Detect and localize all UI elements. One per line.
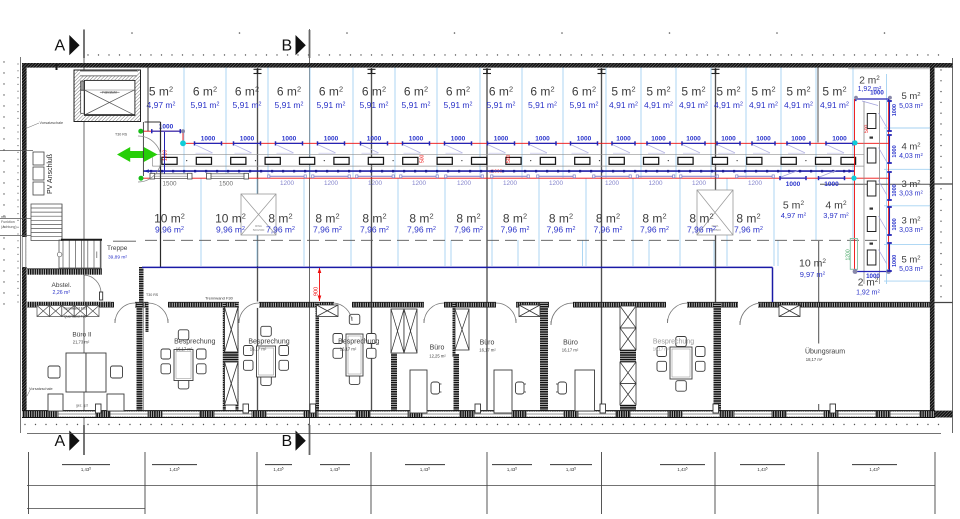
svg-text:4,91 m2: 4,91 m2 [784, 100, 813, 110]
svg-text:Trennwand F30: Trennwand F30 [63, 307, 87, 311]
svg-text:1200: 1200 [549, 180, 564, 187]
svg-text:21,73 m²: 21,73 m² [73, 340, 90, 345]
svg-text:1200: 1200 [748, 180, 763, 187]
svg-text:T30 RS: T30 RS [146, 293, 159, 297]
svg-text:9,96 m2: 9,96 m2 [155, 225, 184, 235]
svg-text:1200: 1200 [324, 180, 339, 187]
svg-text:500: 500 [506, 154, 512, 163]
svg-text:T30 RS: T30 RS [115, 133, 128, 137]
svg-text:1010: 1010 [163, 150, 169, 161]
svg-text:Büro: Büro [563, 340, 578, 347]
svg-text:Abstel.: Abstel. [52, 282, 72, 289]
svg-text:16,17 m²: 16,17 m² [562, 348, 579, 353]
svg-text:4,03 m2: 4,03 m2 [899, 152, 923, 160]
svg-text:1000: 1000 [535, 136, 550, 143]
svg-text:1000: 1000 [494, 136, 509, 143]
svg-text:1200: 1200 [692, 180, 707, 187]
svg-text:7,96 m2: 7,96 m2 [454, 225, 483, 235]
svg-text:1200: 1200 [648, 180, 663, 187]
svg-text:1000: 1000 [651, 136, 666, 143]
svg-text:4,97 m2: 4,97 m2 [147, 100, 176, 110]
svg-text:4,91 m2: 4,91 m2 [820, 100, 849, 110]
svg-text:Fahrstuhl: Fahrstuhl [102, 91, 116, 95]
svg-text:1000: 1000 [892, 218, 898, 230]
svg-text:500x500: 500x500 [253, 228, 265, 232]
svg-text:1000: 1000 [577, 136, 592, 143]
svg-text:Besprechung: Besprechung [174, 339, 215, 346]
svg-text:1500: 1500 [162, 180, 177, 187]
svg-text:500: 500 [420, 154, 426, 163]
svg-text:A: A [55, 38, 66, 55]
svg-text:Besprechung: Besprechung [653, 339, 694, 346]
svg-text:1000: 1000 [721, 136, 736, 143]
svg-text:4,91 m2: 4,91 m2 [714, 100, 743, 110]
svg-text:A: A [55, 433, 66, 450]
svg-text:10 m2: 10 m2 [154, 212, 185, 226]
svg-text:4,91 m2: 4,91 m2 [644, 100, 673, 110]
svg-text:Büro: Büro [430, 345, 445, 352]
svg-text:1000: 1000 [786, 181, 801, 188]
svg-text:1200: 1200 [605, 180, 620, 187]
svg-text:7,96 m2: 7,96 m2 [501, 225, 530, 235]
svg-text:PV Anschluß: PV Anschluß [47, 154, 54, 194]
svg-text:7,96 m2: 7,96 m2 [266, 225, 295, 235]
svg-text:10 m2: 10 m2 [799, 258, 826, 270]
svg-text:3,03 m2: 3,03 m2 [899, 189, 923, 197]
svg-text:1000: 1000 [756, 136, 771, 143]
svg-text:16,17 m²: 16,17 m² [340, 347, 357, 352]
svg-text:1200: 1200 [846, 249, 852, 260]
svg-text:1200: 1200 [280, 180, 295, 187]
svg-text:Büro II: Büro II [72, 332, 91, 339]
svg-text:1000: 1000 [616, 136, 631, 143]
svg-text:5,91 m2: 5,91 m2 [570, 100, 599, 110]
svg-text:1200: 1200 [503, 180, 518, 187]
svg-text:Übungsraum: Übungsraum [805, 348, 845, 356]
svg-text:16,17 m²: 16,17 m² [653, 347, 670, 352]
svg-text:4,91 m2: 4,91 m2 [679, 100, 708, 110]
svg-text:7,96 m2: 7,96 m2 [734, 225, 763, 235]
svg-text:1000: 1000 [791, 136, 806, 143]
svg-text:Treppe: Treppe [107, 245, 128, 252]
svg-text:5,91 m2: 5,91 m2 [275, 100, 304, 110]
svg-text:5,91 m2: 5,91 m2 [317, 100, 346, 110]
svg-text:Büro: Büro [480, 340, 495, 347]
svg-text:B: B [282, 433, 293, 450]
svg-text:5,91 m2: 5,91 m2 [233, 100, 262, 110]
svg-text:Trennwand F30: Trennwand F30 [205, 296, 234, 301]
svg-text:5,91 m2: 5,91 m2 [191, 100, 220, 110]
svg-text:1000: 1000 [324, 136, 339, 143]
svg-text:900: 900 [314, 287, 320, 296]
svg-text:1000: 1000 [892, 184, 898, 196]
svg-text:4,97 m2: 4,97 m2 [781, 211, 807, 220]
svg-text:1000: 1000 [892, 145, 898, 157]
svg-text:1000: 1000 [686, 136, 701, 143]
svg-text:gez. gzt: gez. gzt [76, 404, 88, 408]
svg-text:7,96 m2: 7,96 m2 [360, 225, 389, 235]
svg-text:1000: 1000 [892, 255, 898, 267]
svg-text:1200: 1200 [412, 180, 427, 187]
svg-text:Besprechung: Besprechung [248, 339, 289, 346]
svg-text:Vorsatzschale: Vorsatzschale [40, 121, 64, 125]
svg-text:1200: 1200 [368, 180, 383, 187]
svg-text:16,17 m²: 16,17 m² [176, 347, 193, 352]
svg-text:12,25 m²: 12,25 m² [429, 354, 446, 359]
svg-text:1000: 1000 [409, 136, 424, 143]
svg-text:7,96 m2: 7,96 m2 [594, 225, 623, 235]
svg-text:3,03 m2: 3,03 m2 [899, 226, 923, 234]
svg-text:5,91 m2: 5,91 m2 [528, 100, 557, 110]
svg-text:1000: 1000 [870, 90, 884, 97]
svg-text:9,96 m2: 9,96 m2 [216, 225, 245, 235]
svg-text:9,97 m2: 9,97 m2 [800, 270, 826, 279]
svg-text:7,96 m2: 7,96 m2 [547, 225, 576, 235]
svg-text:Vorsatzschale: Vorsatzschale [29, 387, 53, 391]
svg-text:mit: mit [1, 215, 6, 219]
svg-text:1200: 1200 [457, 180, 472, 187]
svg-text:Besprechung: Besprechung [338, 339, 379, 346]
svg-text:7,96 m2: 7,96 m2 [640, 225, 669, 235]
svg-text:5,03 m2: 5,03 m2 [899, 265, 923, 273]
svg-text:1000: 1000 [824, 181, 839, 188]
svg-text:1000: 1000 [451, 136, 466, 143]
svg-text:1000: 1000 [240, 136, 255, 143]
svg-text:1000: 1000 [282, 136, 297, 143]
svg-text:2,26 m²: 2,26 m² [53, 290, 71, 296]
svg-text:10 m2: 10 m2 [215, 212, 246, 226]
svg-text:7,96 m2: 7,96 m2 [687, 225, 716, 235]
svg-text:Querwand F30: Querwand F30 [64, 315, 87, 319]
svg-text:1000: 1000 [367, 136, 382, 143]
svg-text:5,91 m2: 5,91 m2 [487, 100, 516, 110]
svg-text:1000: 1000 [866, 273, 880, 280]
svg-text:7,96 m2: 7,96 m2 [407, 225, 436, 235]
svg-text:5,91 m2: 5,91 m2 [444, 100, 473, 110]
svg-text:1000: 1000 [892, 104, 898, 116]
svg-text:(Achtung): (Achtung) [1, 225, 17, 229]
svg-text:3,97 m2: 3,97 m2 [823, 211, 849, 220]
svg-text:4,91 m2: 4,91 m2 [609, 100, 638, 110]
svg-text:1,92 m2: 1,92 m2 [856, 288, 880, 296]
svg-text:18,17 m²: 18,17 m² [806, 357, 823, 362]
svg-text:5,91 m2: 5,91 m2 [402, 100, 431, 110]
svg-text:16,17 m²: 16,17 m² [479, 348, 496, 353]
svg-text:1000: 1000 [201, 136, 216, 143]
svg-text:7,96 m2: 7,96 m2 [313, 225, 342, 235]
svg-text:5,03 m2: 5,03 m2 [899, 102, 923, 110]
svg-text:1000: 1000 [832, 136, 847, 143]
svg-text:39,89 m²: 39,89 m² [108, 255, 127, 261]
svg-text:5,91 m2: 5,91 m2 [360, 100, 389, 110]
svg-text:16,17 m²: 16,17 m² [250, 347, 267, 352]
svg-text:Funktion: Funktion [1, 220, 15, 224]
svg-text:B: B [282, 38, 293, 55]
svg-text:4,91 m2: 4,91 m2 [749, 100, 778, 110]
svg-text:1500: 1500 [219, 180, 234, 187]
